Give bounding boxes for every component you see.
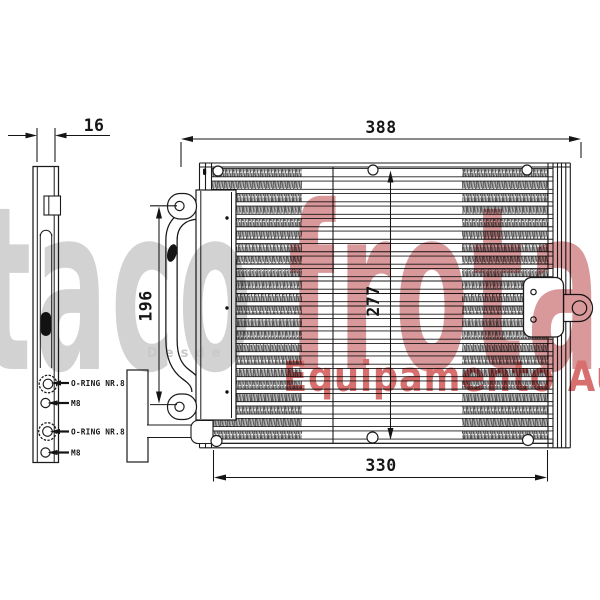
slot-dark-cap <box>41 312 51 336</box>
oring-label-top: O-RING NR.8 <box>71 379 125 388</box>
side-view <box>33 167 61 463</box>
condenser-technical-drawing: O-RING NR.8 M8 O-RING NR.8 M8 16 388 196… <box>0 0 600 600</box>
connector-block <box>127 370 148 462</box>
m8-label-bottom: M8 <box>71 449 81 458</box>
oring-label-bottom: O-RING NR.8 <box>71 428 125 437</box>
dim-left-pipe-height: 196 <box>137 290 156 321</box>
m8-label-top: M8 <box>71 399 81 408</box>
dim-core-height: 277 <box>364 285 383 316</box>
dimension-16: 16 <box>8 116 110 162</box>
dim-overall-width: 388 <box>365 118 396 137</box>
bottom-pipe <box>147 425 194 438</box>
catalog-drawing-page: O-RING NR.8 M8 O-RING NR.8 M8 16 388 196… <box>0 0 600 600</box>
side-view-tab <box>44 196 61 215</box>
core-top-clip <box>203 169 206 176</box>
dim-side-depth: 16 <box>84 116 105 135</box>
dim-core-width: 330 <box>365 456 396 475</box>
bottom-tab-hole <box>175 402 184 411</box>
side-plate <box>196 190 236 420</box>
pipe-corner-block <box>191 421 213 444</box>
dimension-388: 388 <box>181 118 581 167</box>
dimension-277: 277 <box>364 171 394 441</box>
dimension-330: 330 <box>214 450 548 482</box>
right-mounting-bracket <box>524 278 593 338</box>
